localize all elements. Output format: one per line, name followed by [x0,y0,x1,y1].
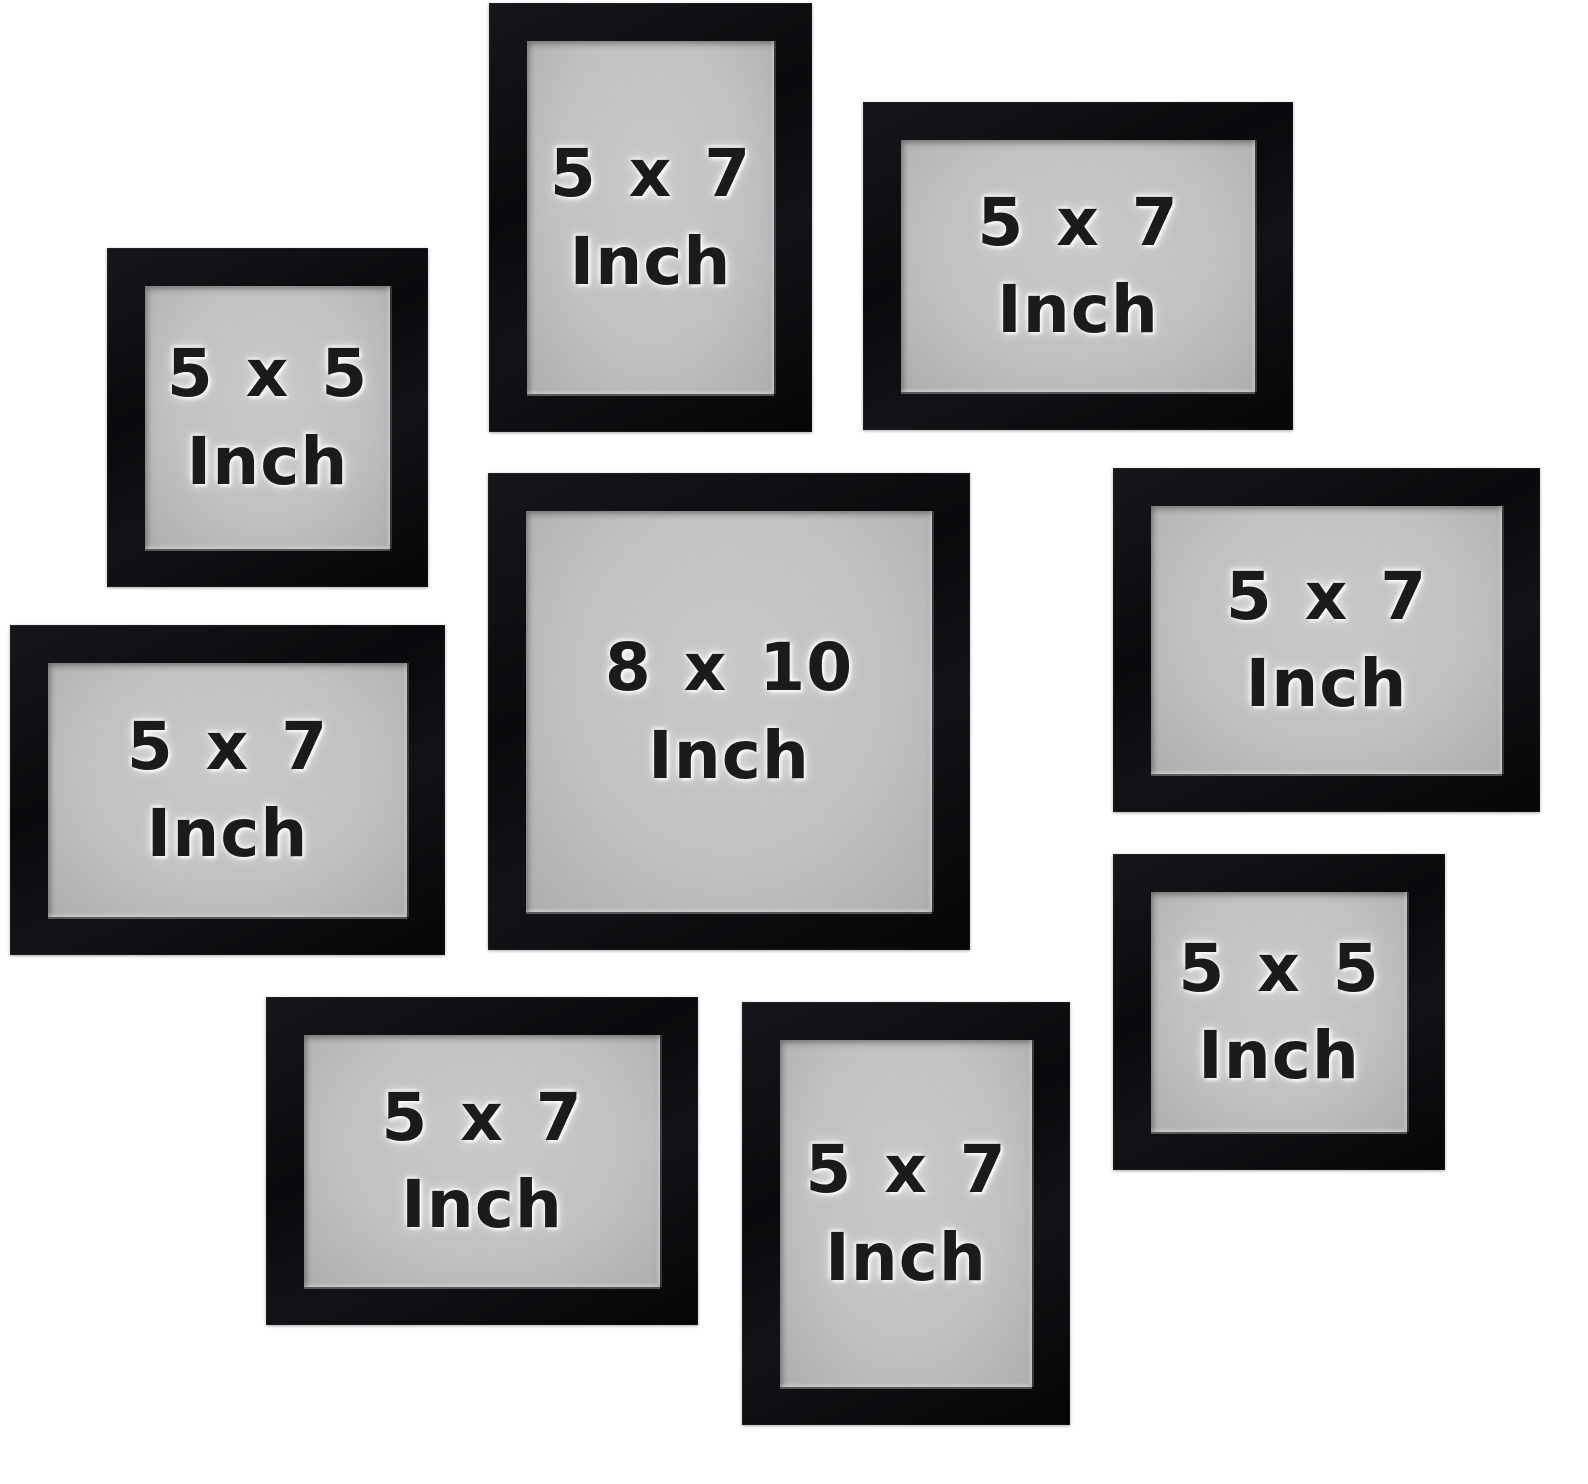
frame-size-label: 8 x 10 Inch [605,624,853,798]
photo-frame-5x7-bottom-left: 5 x 7 Inch [266,997,698,1325]
frame-mat: 5 x 7 Inch [48,663,407,917]
photo-frame-5x5-right-lower: 5 x 5 Inch [1113,854,1445,1170]
frame-size-text: 5 x 5 [1178,925,1379,1012]
photo-frame-5x7-bottom-center: 5 x 7 Inch [742,1002,1070,1425]
frame-mat: 5 x 5 Inch [145,286,390,549]
frame-size-text: 5 x 7 [977,179,1178,266]
frame-unit-text: Inch [127,790,328,877]
frame-size-text: 5 x 7 [1226,553,1427,640]
product-image-canvas: 5 x 5 Inch 5 x 7 Inch 5 x 7 Inch 5 x 7 I… [0,0,1588,1484]
frame-size-text: 5 x 7 [550,130,751,217]
frame-size-text: 5 x 7 [805,1126,1006,1213]
photo-frame-5x7-top-right: 5 x 7 Inch [863,102,1293,430]
frame-mat: 5 x 5 Inch [1151,892,1407,1132]
frame-unit-text: Inch [167,418,368,505]
frame-size-label: 5 x 7 Inch [805,1126,1006,1300]
frame-size-label: 5 x 5 Inch [1178,925,1379,1099]
frame-size-text: 5 x 7 [127,703,328,790]
frame-unit-text: Inch [805,1214,1006,1301]
frame-size-text: 5 x 5 [167,330,368,417]
frame-mat: 5 x 7 Inch [901,140,1255,392]
photo-frame-5x7-top-center: 5 x 7 Inch [489,3,812,432]
frame-size-label: 5 x 7 Inch [381,1074,582,1248]
frame-mat: 5 x 7 Inch [1151,506,1502,774]
frame-unit-text: Inch [605,712,853,799]
frame-size-text: 5 x 7 [381,1074,582,1161]
frame-unit-text: Inch [1226,640,1427,727]
frame-size-label: 5 x 7 Inch [127,703,328,877]
photo-frame-5x5-top-left: 5 x 5 Inch [107,248,428,587]
frame-unit-text: Inch [1178,1012,1379,1099]
frame-mat: 5 x 7 Inch [780,1040,1032,1387]
frame-size-text: 8 x 10 [605,624,853,711]
frame-unit-text: Inch [550,218,751,305]
photo-frame-8x10-center: 8 x 10 Inch [488,473,970,950]
photo-frame-5x7-middle-left: 5 x 7 Inch [10,625,445,955]
frame-size-label: 5 x 7 Inch [550,130,751,304]
photo-frame-5x7-middle-right: 5 x 7 Inch [1113,468,1540,812]
frame-size-label: 5 x 7 Inch [1226,553,1427,727]
frame-unit-text: Inch [977,266,1178,353]
frame-mat: 5 x 7 Inch [304,1035,660,1287]
frame-mat: 8 x 10 Inch [526,511,932,912]
frame-size-label: 5 x 7 Inch [977,179,1178,353]
frame-size-label: 5 x 5 Inch [167,330,368,504]
frame-mat: 5 x 7 Inch [527,41,774,394]
frame-unit-text: Inch [381,1161,582,1248]
